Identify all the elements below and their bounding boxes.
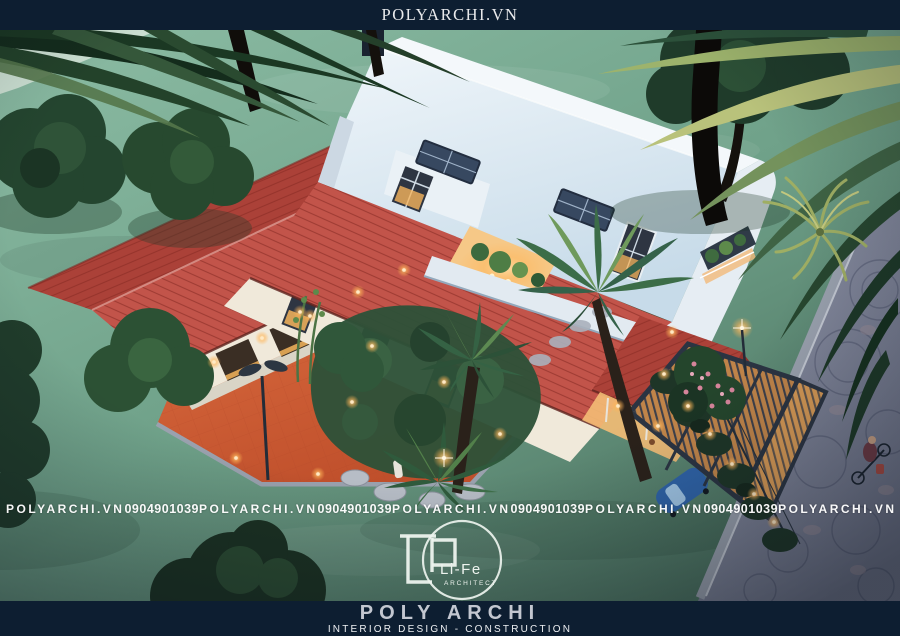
poster-page: POLYARCHI.VN POLYARCHI.VN 0904901039 POL…	[0, 0, 900, 636]
watermark-phone: 0904901039	[124, 502, 199, 516]
logo-name-text: Li-Fe	[440, 561, 482, 578]
header-brand-text: POLYARCHI.VN	[382, 5, 519, 25]
watermark-brand: POLYARCHI.VN	[392, 502, 510, 516]
watermark-brand: POLYARCHI.VN	[199, 502, 317, 516]
watermark-brand: POLYARCHI.VN	[778, 502, 896, 516]
watermark-phone: 0904901039	[511, 502, 586, 516]
footer-brand-text: POLY ARCHI	[360, 603, 540, 623]
watermark-phone: 0904901039	[704, 502, 779, 516]
studio-logo: Li-Fe ARCHITECT	[396, 516, 514, 604]
watermark-phone: 0904901039	[318, 502, 393, 516]
header-bar: POLYARCHI.VN	[0, 0, 900, 30]
watermark-brand: POLYARCHI.VN	[585, 502, 703, 516]
logo-subtitle-text: ARCHITECT	[444, 580, 497, 587]
footer-bar: POLY ARCHI INTERIOR DESIGN - CONSTRUCTIO…	[0, 601, 900, 636]
watermark-brand: POLYARCHI.VN	[6, 502, 124, 516]
footer-tagline-text: INTERIOR DESIGN - CONSTRUCTION	[328, 624, 572, 635]
